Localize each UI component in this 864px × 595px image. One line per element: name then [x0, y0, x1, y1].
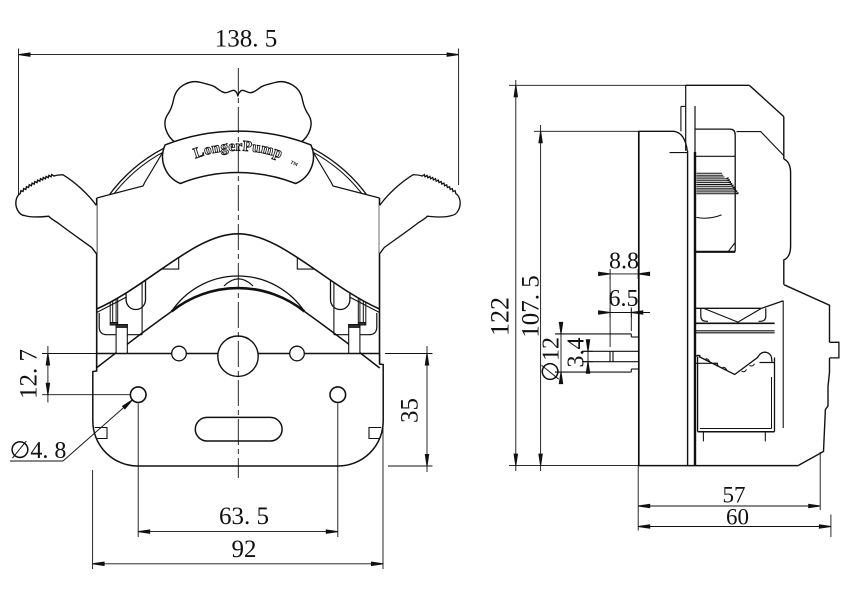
- svg-text:35: 35: [397, 398, 424, 423]
- svg-text:6.5: 6.5: [609, 286, 639, 312]
- svg-text:12. 7: 12. 7: [16, 349, 43, 399]
- svg-text:3.4: 3.4: [564, 338, 590, 368]
- svg-text:∅4. 8: ∅4. 8: [10, 438, 67, 464]
- svg-text:107. 5: 107. 5: [518, 275, 545, 338]
- svg-text:92: 92: [232, 536, 257, 563]
- svg-text:122: 122: [486, 297, 515, 336]
- svg-text:138. 5: 138. 5: [215, 26, 278, 53]
- svg-text:60: 60: [726, 505, 749, 530]
- svg-text:63. 5: 63. 5: [219, 503, 269, 530]
- svg-text:∅12: ∅12: [539, 337, 565, 382]
- svg-text:8.8: 8.8: [609, 249, 639, 275]
